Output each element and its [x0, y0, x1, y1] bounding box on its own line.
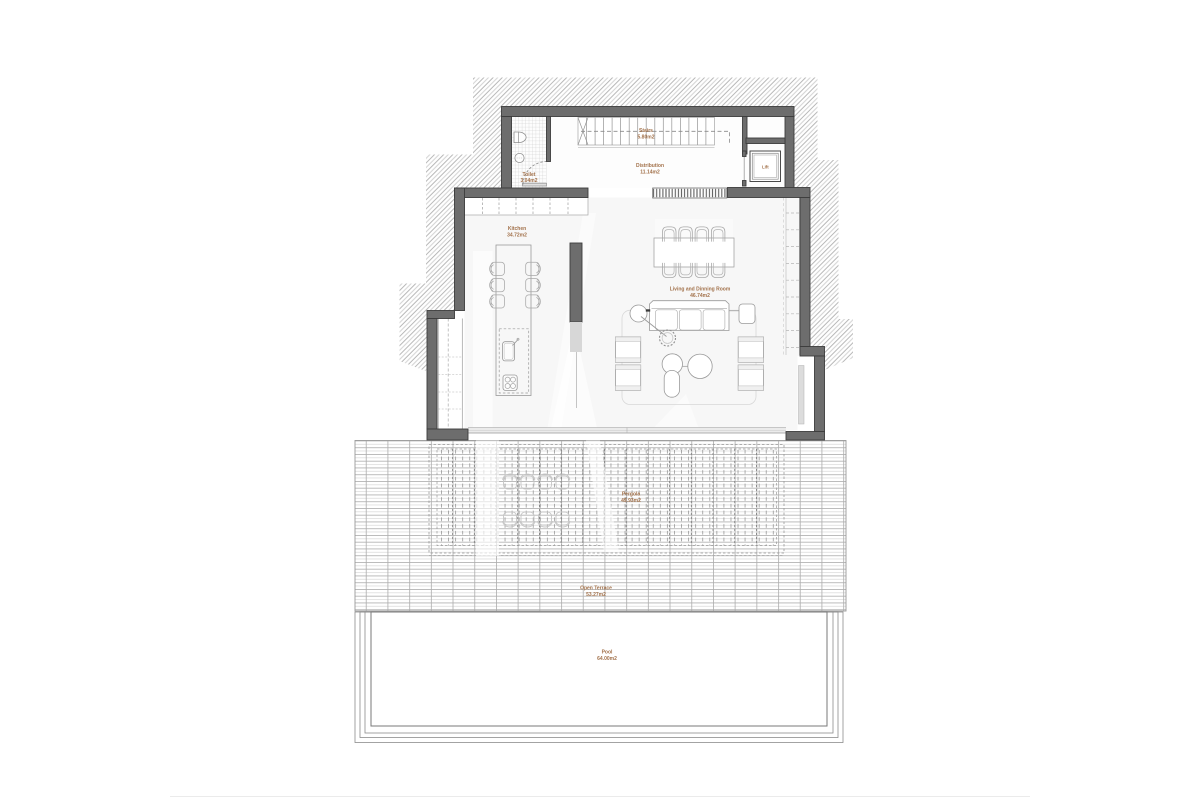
svg-text:Open Terrace: Open Terrace: [580, 586, 612, 592]
svg-text:Distribution: Distribution: [636, 163, 664, 169]
svg-text:Living and Dinning Room: Living and Dinning Room: [670, 287, 731, 293]
svg-text:Lift: Lift: [762, 164, 769, 169]
svg-text:5.80m2: 5.80m2: [638, 134, 655, 140]
svg-text:49.93m2: 49.93m2: [621, 498, 641, 504]
svg-text:Pergola: Pergola: [622, 492, 641, 498]
svg-text:Kitchen: Kitchen: [508, 226, 526, 232]
svg-text:Toilet: Toilet: [523, 172, 536, 178]
svg-text:11.14m2: 11.14m2: [640, 169, 660, 175]
svg-text:46.74m2: 46.74m2: [690, 293, 710, 299]
svg-text:Stairs: Stairs: [639, 128, 653, 134]
svg-text:64.00m2: 64.00m2: [597, 656, 617, 662]
svg-text:53.27m2: 53.27m2: [586, 592, 606, 598]
svg-text:3.04m2: 3.04m2: [521, 178, 538, 184]
svg-text:Pool: Pool: [602, 650, 613, 656]
svg-text:34.72m2: 34.72m2: [507, 232, 527, 238]
